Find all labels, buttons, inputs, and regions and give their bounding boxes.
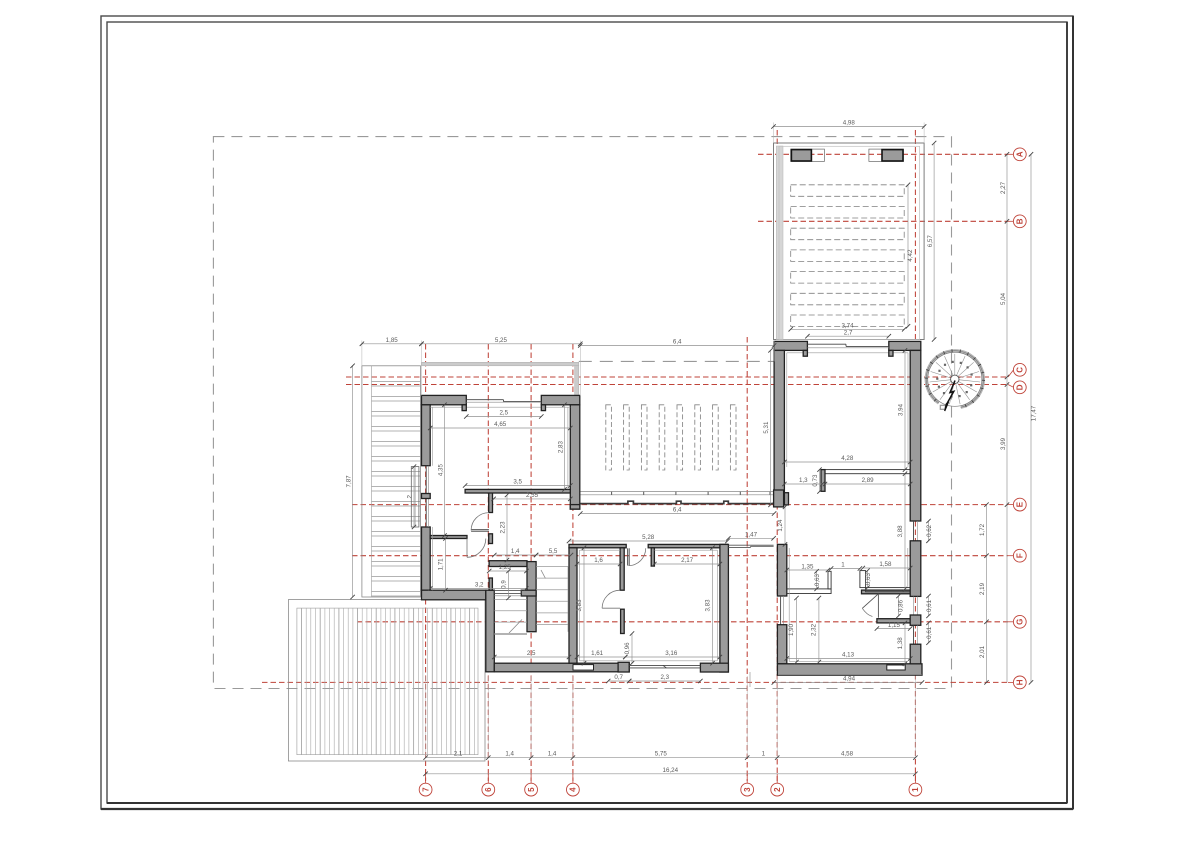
svg-text:D: D <box>1016 384 1025 390</box>
svg-text:6: 6 <box>484 787 493 792</box>
svg-text:5,75: 5,75 <box>655 751 668 758</box>
svg-text:2,83: 2,83 <box>557 441 564 454</box>
svg-text:2: 2 <box>407 495 414 499</box>
svg-text:0,63: 0,63 <box>814 574 821 587</box>
svg-text:2,89: 2,89 <box>862 477 875 484</box>
svg-text:0,62: 0,62 <box>926 524 933 537</box>
svg-text:7: 7 <box>421 787 430 792</box>
svg-text:3,99: 3,99 <box>1000 437 1007 450</box>
svg-text:0,7: 0,7 <box>614 674 623 681</box>
svg-text:B: B <box>1016 218 1025 224</box>
svg-text:0,63: 0,63 <box>865 573 872 586</box>
svg-text:2,3: 2,3 <box>660 674 669 681</box>
svg-text:0,61: 0,61 <box>926 626 933 639</box>
svg-text:4,98: 4,98 <box>843 120 856 127</box>
svg-text:1,4: 1,4 <box>505 751 514 758</box>
svg-text:2,5: 2,5 <box>527 650 536 657</box>
svg-text:4,42: 4,42 <box>907 249 914 262</box>
svg-text:3: 3 <box>743 787 752 792</box>
svg-text:2: 2 <box>773 787 782 792</box>
svg-text:4,13: 4,13 <box>842 652 855 659</box>
svg-text:1,3: 1,3 <box>799 477 808 484</box>
svg-text:1,71: 1,71 <box>438 558 445 571</box>
svg-text:3,94: 3,94 <box>897 403 904 416</box>
svg-text:4: 4 <box>569 787 578 792</box>
svg-text:1,4: 1,4 <box>511 548 520 555</box>
svg-text:5,5: 5,5 <box>549 548 558 555</box>
svg-text:1,35: 1,35 <box>801 564 814 571</box>
svg-text:0,86: 0,86 <box>897 599 904 612</box>
svg-text:2,7: 2,7 <box>844 329 853 336</box>
svg-text:3,88: 3,88 <box>897 525 904 538</box>
svg-text:A: A <box>1016 151 1025 157</box>
svg-text:2,01: 2,01 <box>979 645 986 658</box>
svg-text:2,1: 2,1 <box>454 751 463 758</box>
svg-text:1,4: 1,4 <box>548 751 557 758</box>
svg-text:0,73: 0,73 <box>812 474 819 487</box>
svg-text:2,17: 2,17 <box>681 557 694 564</box>
svg-text:1,85: 1,85 <box>386 337 399 344</box>
svg-text:4,28: 4,28 <box>841 455 854 462</box>
svg-text:1,61: 1,61 <box>591 650 604 657</box>
svg-text:6,4: 6,4 <box>673 339 682 346</box>
svg-text:H: H <box>1015 679 1024 685</box>
svg-text:1,15: 1,15 <box>888 622 901 629</box>
svg-text:2,19: 2,19 <box>979 582 986 595</box>
svg-text:7,87: 7,87 <box>346 475 353 488</box>
svg-text:4,94: 4,94 <box>843 676 856 683</box>
svg-text:17,47: 17,47 <box>1031 405 1038 421</box>
svg-text:4,58: 4,58 <box>841 751 854 758</box>
svg-text:C: C <box>1016 367 1025 373</box>
svg-text:6,57: 6,57 <box>927 235 934 248</box>
svg-text:0,61: 0,61 <box>926 599 933 612</box>
svg-text:1,58: 1,58 <box>879 561 892 568</box>
svg-text:2,5: 2,5 <box>499 410 508 417</box>
svg-text:5: 5 <box>527 787 536 792</box>
svg-text:1,38: 1,38 <box>897 637 904 650</box>
svg-text:6,4: 6,4 <box>673 507 682 514</box>
svg-text:0,9: 0,9 <box>501 580 508 589</box>
svg-text:1,24: 1,24 <box>777 519 784 532</box>
svg-text:G: G <box>1016 619 1025 625</box>
svg-text:0,96: 0,96 <box>624 642 631 655</box>
svg-text:5,04: 5,04 <box>1000 292 1007 305</box>
svg-text:1,90: 1,90 <box>788 623 795 636</box>
svg-text:5,28: 5,28 <box>642 534 655 541</box>
svg-text:3,83: 3,83 <box>704 599 711 612</box>
svg-text:1,6: 1,6 <box>594 557 603 564</box>
svg-text:3,16: 3,16 <box>665 650 678 657</box>
svg-text:E: E <box>1016 501 1025 507</box>
svg-text:5,25: 5,25 <box>495 337 508 344</box>
svg-text:1,47: 1,47 <box>745 532 758 539</box>
svg-text:2,27: 2,27 <box>1000 181 1007 194</box>
svg-text:3,2: 3,2 <box>475 582 484 589</box>
svg-text:4,35: 4,35 <box>438 464 445 477</box>
svg-text:2,23: 2,23 <box>500 521 507 534</box>
svg-text:5,31: 5,31 <box>763 421 770 434</box>
svg-text:3,83: 3,83 <box>576 599 583 612</box>
svg-text:1,72: 1,72 <box>979 523 986 536</box>
svg-text:1: 1 <box>841 562 845 569</box>
svg-text:1: 1 <box>762 751 766 758</box>
svg-text:1: 1 <box>911 787 920 792</box>
svg-text:2,32: 2,32 <box>810 623 817 636</box>
svg-text:16,24: 16,24 <box>663 767 679 774</box>
svg-text:3,5: 3,5 <box>513 479 522 486</box>
svg-text:4,65: 4,65 <box>494 421 507 428</box>
svg-text:2,55: 2,55 <box>526 492 539 499</box>
svg-text:F: F <box>1016 553 1025 558</box>
